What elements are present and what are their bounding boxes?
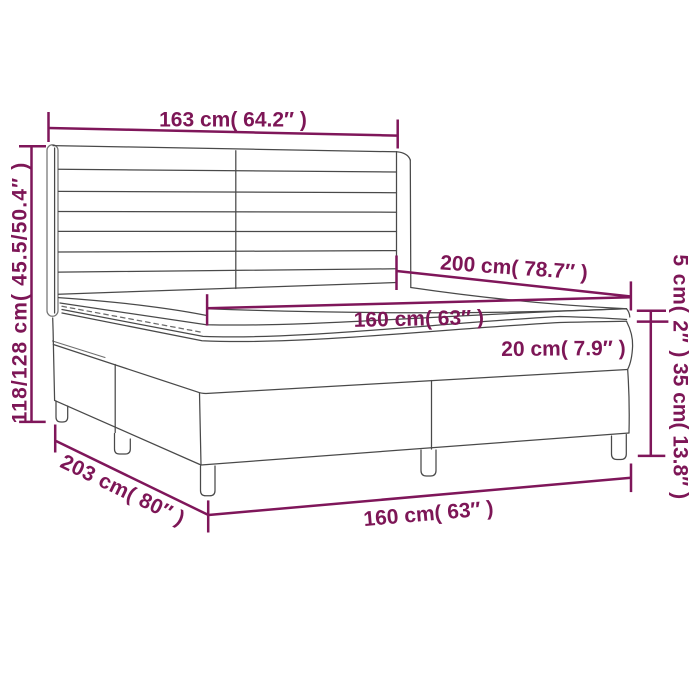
svg-text:118/128 cm( 45.5/50.4″ ): 118/128 cm( 45.5/50.4″ ) bbox=[9, 162, 32, 424]
svg-text:20 cm( 7.9″ ): 20 cm( 7.9″ ) bbox=[501, 337, 626, 361]
svg-text:5 cm( 2″ ): 5 cm( 2″ ) bbox=[669, 254, 692, 358]
svg-text:35 cm( 13.8″ ): 35 cm( 13.8″ ) bbox=[669, 363, 692, 499]
svg-text:160 cm( 63″ ): 160 cm( 63″ ) bbox=[353, 306, 484, 332]
svg-text:163 cm( 64.2″ ): 163 cm( 64.2″ ) bbox=[159, 109, 307, 132]
